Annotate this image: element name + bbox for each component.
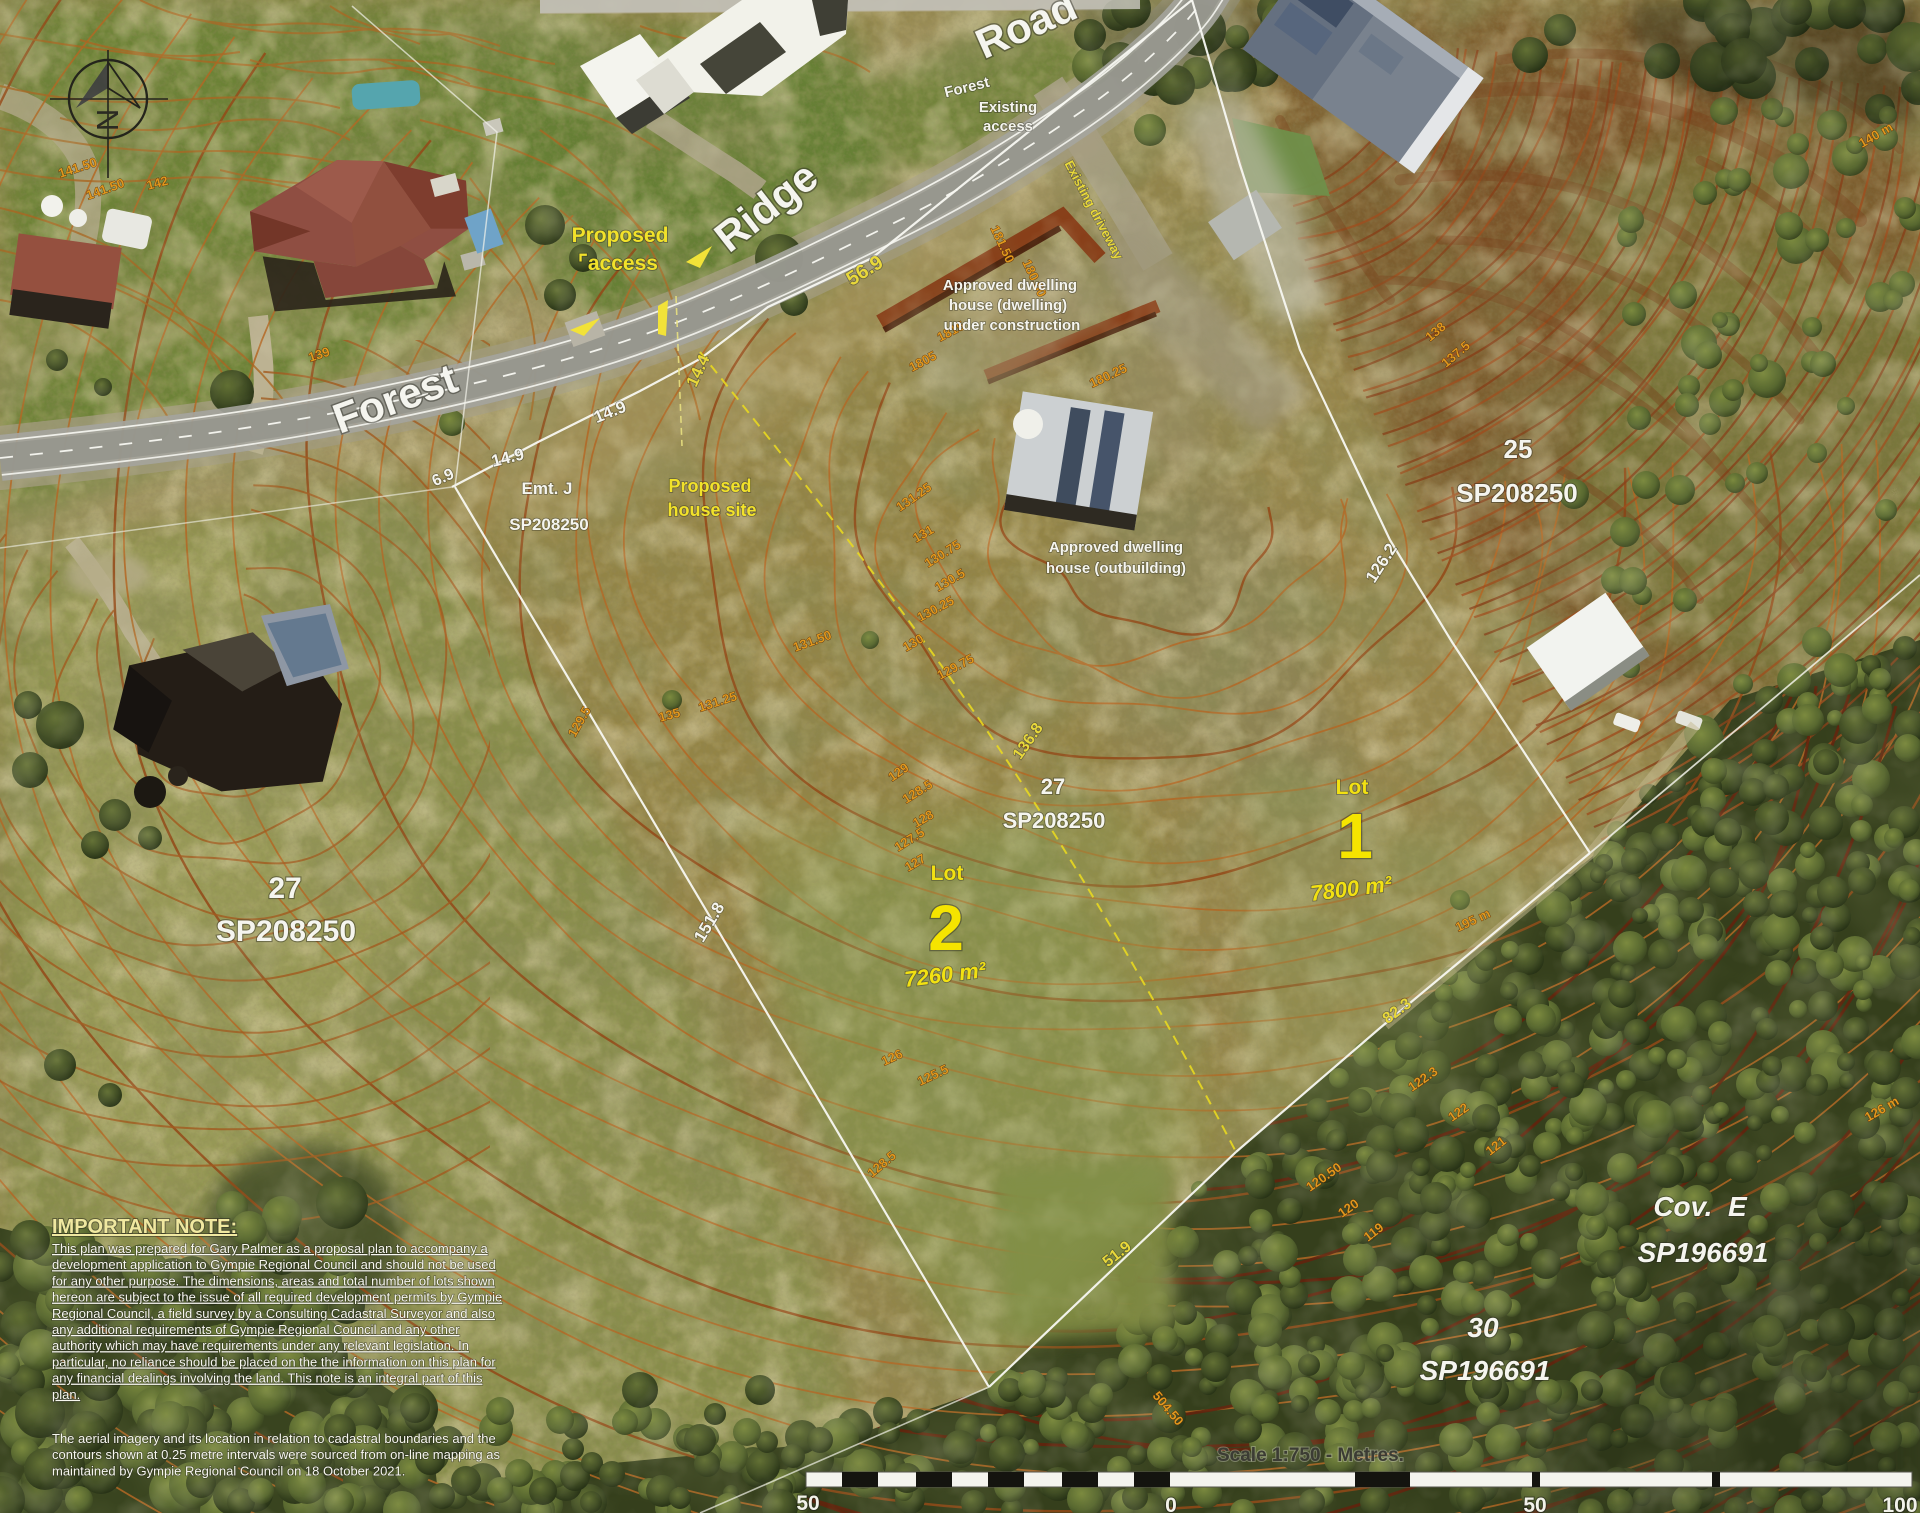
svg-text:30: 30: [1467, 1312, 1499, 1343]
svg-text:Cov. E: Cov. E: [1653, 1191, 1748, 1222]
svg-text:development application to Gym: development application to Gympie Region…: [52, 1257, 496, 1272]
svg-text:Approved dwelling: Approved dwelling: [943, 277, 1077, 294]
svg-text:SP208250: SP208250: [216, 915, 356, 948]
svg-text:50: 50: [796, 1492, 819, 1513]
svg-text:25: 25: [1504, 434, 1533, 464]
svg-text:Approved dwelling: Approved dwelling: [1049, 539, 1183, 556]
svg-text:maintained by Gympie Regional: maintained by Gympie Regional Council on…: [52, 1463, 405, 1478]
svg-text:authority which may have requi: authority which may have requirements un…: [52, 1338, 469, 1353]
svg-text:particular, no reliance should: particular, no reliance should be placed…: [52, 1354, 496, 1369]
svg-text:house site: house site: [667, 500, 756, 520]
svg-text:hereon are subject to the issu: hereon are subject to the issue of all r…: [52, 1290, 502, 1305]
svg-text:100: 100: [1882, 1494, 1917, 1513]
svg-text:IMPORTANT NOTE:: IMPORTANT NOTE:: [52, 1216, 237, 1238]
svg-text:SP208250: SP208250: [1003, 808, 1106, 833]
svg-text:Lot: Lot: [1336, 776, 1369, 799]
svg-text:Regional Council, a field surv: Regional Council, a field survey by a Co…: [52, 1306, 495, 1321]
svg-text:for any other purpose. The di: for any other purpose. The dimensions, a…: [52, 1273, 495, 1288]
svg-text:Emt. J: Emt. J: [521, 479, 572, 498]
svg-text:1: 1: [1337, 800, 1373, 872]
svg-text:access: access: [983, 118, 1033, 135]
svg-text:50: 50: [1523, 1494, 1546, 1513]
svg-text:house (dwelling): house (dwelling): [949, 297, 1067, 314]
svg-text:Existing: Existing: [979, 99, 1037, 116]
svg-text:Proposed: Proposed: [572, 224, 669, 247]
svg-text:SP196691: SP196691: [1638, 1237, 1769, 1268]
svg-text:⌜access: ⌜access: [578, 252, 658, 275]
svg-text:any additional requirements of: any additional requirements of Gympie Re…: [52, 1322, 460, 1337]
svg-text:27: 27: [268, 872, 301, 905]
svg-text:SP208250: SP208250: [1456, 478, 1577, 508]
svg-text:Lot: Lot: [931, 862, 964, 885]
svg-text:2: 2: [928, 892, 964, 964]
svg-text:0: 0: [1165, 1494, 1177, 1513]
svg-text:any financial dealings involvi: any financial dealings involving the lan…: [52, 1371, 483, 1386]
svg-text:SP196691: SP196691: [1420, 1355, 1551, 1386]
svg-text:under construction: under construction: [944, 317, 1081, 334]
svg-text:SP208250: SP208250: [509, 515, 588, 534]
svg-text:27: 27: [1041, 774, 1065, 799]
svg-text:plan.: plan.: [52, 1387, 80, 1402]
svg-text:This plan was prepared for Gar: This plan was prepared for Gary Palmer a…: [52, 1241, 488, 1256]
svg-text:house (outbuilding): house (outbuilding): [1046, 560, 1186, 577]
svg-text:Proposed: Proposed: [668, 476, 751, 496]
svg-text:N: N: [90, 109, 125, 131]
svg-text:contours shown at 0.25 metre i: contours shown at 0.25 metre intervals w…: [52, 1447, 500, 1462]
svg-text:Scale 1:750 - Metres.: Scale 1:750 - Metres.: [1217, 1445, 1404, 1466]
svg-text:The aerial imagery and its loc: The aerial imagery and its location in r…: [52, 1431, 496, 1446]
